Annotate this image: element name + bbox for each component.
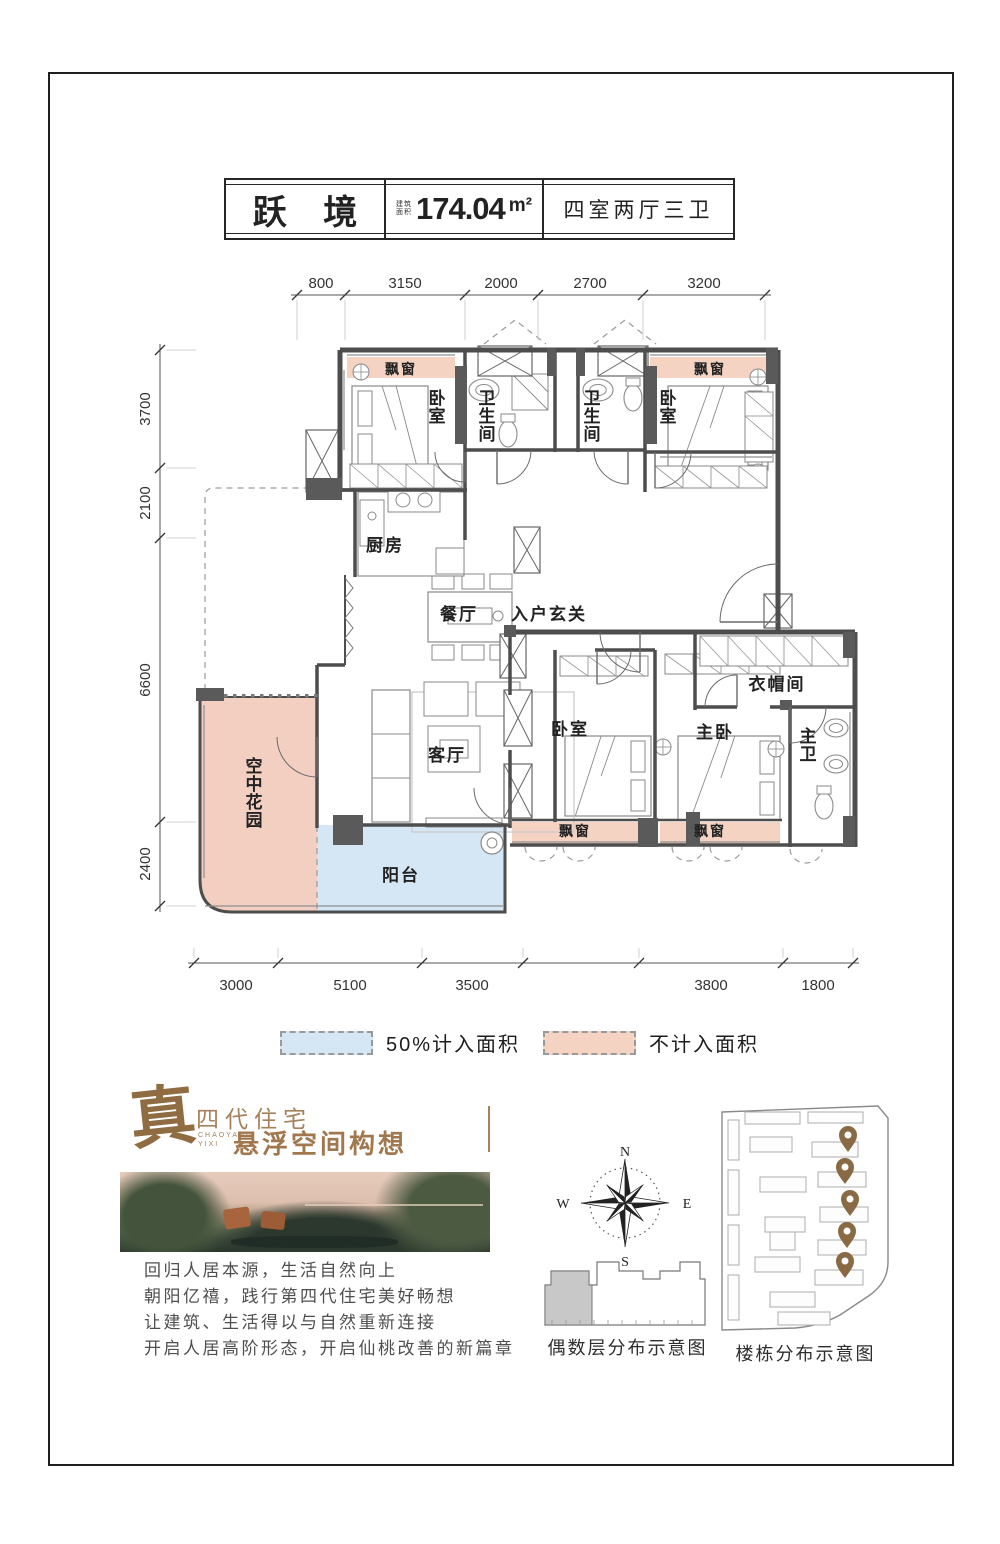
- photo-chair: [260, 1211, 286, 1230]
- site-diagram-caption: 楼栋分布示意图: [718, 1340, 893, 1366]
- legend-swatch-blue: [280, 1031, 373, 1055]
- photo-chair: [222, 1206, 251, 1229]
- area-unit: m²: [509, 195, 532, 217]
- copy-line: 回归人居本源，生活自然向上: [144, 1258, 564, 1284]
- legend-item-bay: 不计入面积: [543, 1028, 759, 1057]
- copy-line: 让建筑、生活得以与自然重新连接: [144, 1310, 564, 1336]
- layout-type: 四室两厅三卫: [544, 180, 733, 238]
- page-border: [48, 72, 954, 1466]
- area-value: 174.04: [416, 191, 505, 227]
- copy-line: 朝阳亿禧，践行第四代住宅美好畅想: [144, 1284, 564, 1310]
- unit-name: 跃 境: [226, 180, 384, 238]
- brand-slogan: 悬浮空间构想: [233, 1124, 407, 1161]
- terrace-photo: [120, 1172, 490, 1252]
- area-label: 建筑面积: [396, 201, 412, 217]
- brand-seal: 真: [127, 1083, 200, 1156]
- brand-copy: 回归人居本源，生活自然向上 朝阳亿禧，践行第四代住宅美好畅想 让建筑、生活得以与…: [144, 1258, 564, 1362]
- legend-item-balcony: 50%计入面积: [280, 1028, 520, 1057]
- title-box: 跃 境 建筑面积 174.04 m² 四室两厅三卫: [224, 178, 735, 240]
- brand-divider: [488, 1106, 490, 1152]
- copy-line: 开启人居高阶形态，开启仙桃改善的新篇章: [144, 1336, 564, 1362]
- legend-label: 50%计入面积: [386, 1028, 520, 1057]
- legend-swatch-pink: [543, 1031, 636, 1055]
- area-cell: 建筑面积 174.04 m²: [384, 180, 544, 238]
- floor-diagram-caption: 偶数层分布示意图: [540, 1334, 715, 1360]
- photo-railing: [305, 1204, 483, 1206]
- legend-label: 不计入面积: [649, 1028, 759, 1057]
- floorplan-poster: 跃 境 建筑面积 174.04 m² 四室两厅三卫 80031502000270…: [0, 0, 1000, 1544]
- photo-pool: [231, 1236, 398, 1248]
